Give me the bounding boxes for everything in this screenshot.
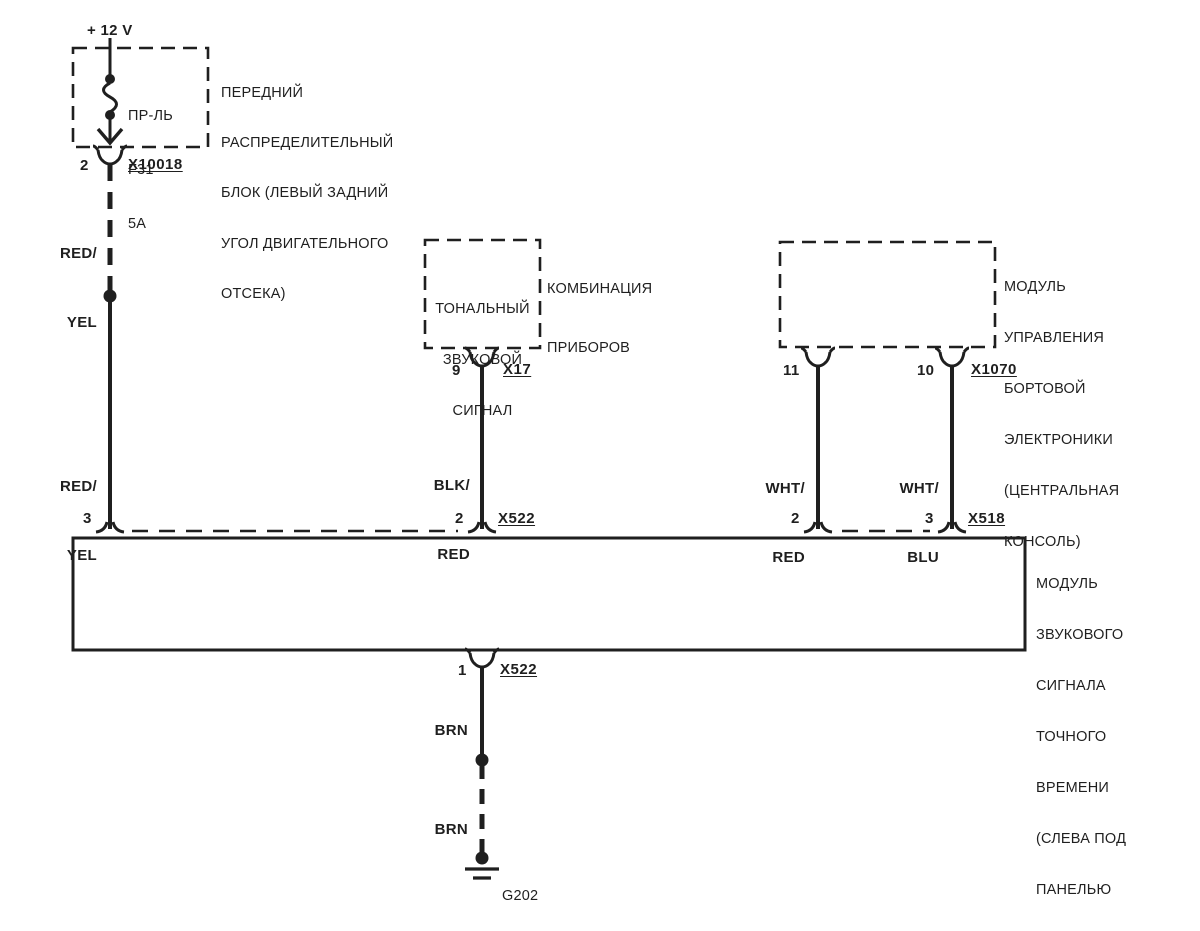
- pin-number-x1070-left: 11: [783, 362, 799, 379]
- connector-id-x1070: X1070: [971, 361, 1017, 378]
- pin-number-x518-a: 2: [791, 510, 800, 527]
- pin-number-chime-left: 3: [83, 510, 92, 527]
- body-electronics-box: [780, 242, 995, 347]
- instrument-cluster-label: КОМБИНАЦИЯ ПРИБОРОВ: [547, 241, 652, 397]
- connector-id-x10018: X10018: [128, 156, 183, 173]
- connector-id-x522-bottom: X522: [500, 661, 537, 678]
- pin-number-x522-top: 2: [455, 510, 464, 527]
- chime-module-label: МОДУЛЬ ЗВУКОВОГО СИГНАЛА ТОЧНОГО ВРЕМЕНИ…: [1036, 542, 1126, 931]
- ground-id: G202: [502, 887, 670, 906]
- wiring-diagram: + 12 V ПР-ЛЬ F31 5A ПЕРЕДНИЙ РАСПРЕДЕЛИТ…: [0, 0, 1200, 931]
- connector-cup-x1070-left: [801, 348, 835, 366]
- connector-cup-x522-bottom: [465, 649, 499, 667]
- connector-id-x518: X518: [968, 510, 1005, 527]
- connector-id-x17: X17: [503, 361, 531, 378]
- fuse-rating: 5A: [128, 215, 173, 233]
- body-electronics-label: МОДУЛЬ УПРАВЛЕНИЯ БОРТОВОЙ ЭЛЕКТРОНИКИ (…: [1004, 245, 1119, 585]
- fuse-icon: [98, 38, 122, 143]
- wire-label-brn-lower: BRN: [425, 818, 468, 841]
- power-source-label: + 12 V: [87, 22, 133, 39]
- pin-number-x522-bottom: 1: [458, 662, 467, 679]
- wire-label-red-yel-upper: RED/ YEL: [45, 196, 97, 380]
- pin-number-x518-b: 3: [925, 510, 934, 527]
- pin-number-x1070-right: 10: [917, 362, 934, 379]
- pin-number-x17: 9: [452, 362, 461, 379]
- connector-cup-x10018: [93, 146, 127, 164]
- fuse-name: ПР-ЛЬ: [128, 107, 173, 125]
- ground-label: G202 (СЛЕВА ПОД ПАНЕЛЬЮ ПРИБОРОВ): [502, 850, 670, 931]
- chime-module-box: [73, 538, 1025, 650]
- wire-label-brn-upper: BRN: [425, 719, 468, 742]
- pin-number-x10018: 2: [80, 157, 89, 174]
- connector-cup-x1070-right: [935, 348, 969, 366]
- fuse-block-label: ПЕРЕДНИЙ РАСПРЕДЕЛИТЕЛЬНЫЙ БЛОК (ЛЕВЫЙ З…: [221, 51, 393, 337]
- ground-icon: [465, 852, 499, 879]
- connector-id-x522-top: X522: [498, 510, 535, 527]
